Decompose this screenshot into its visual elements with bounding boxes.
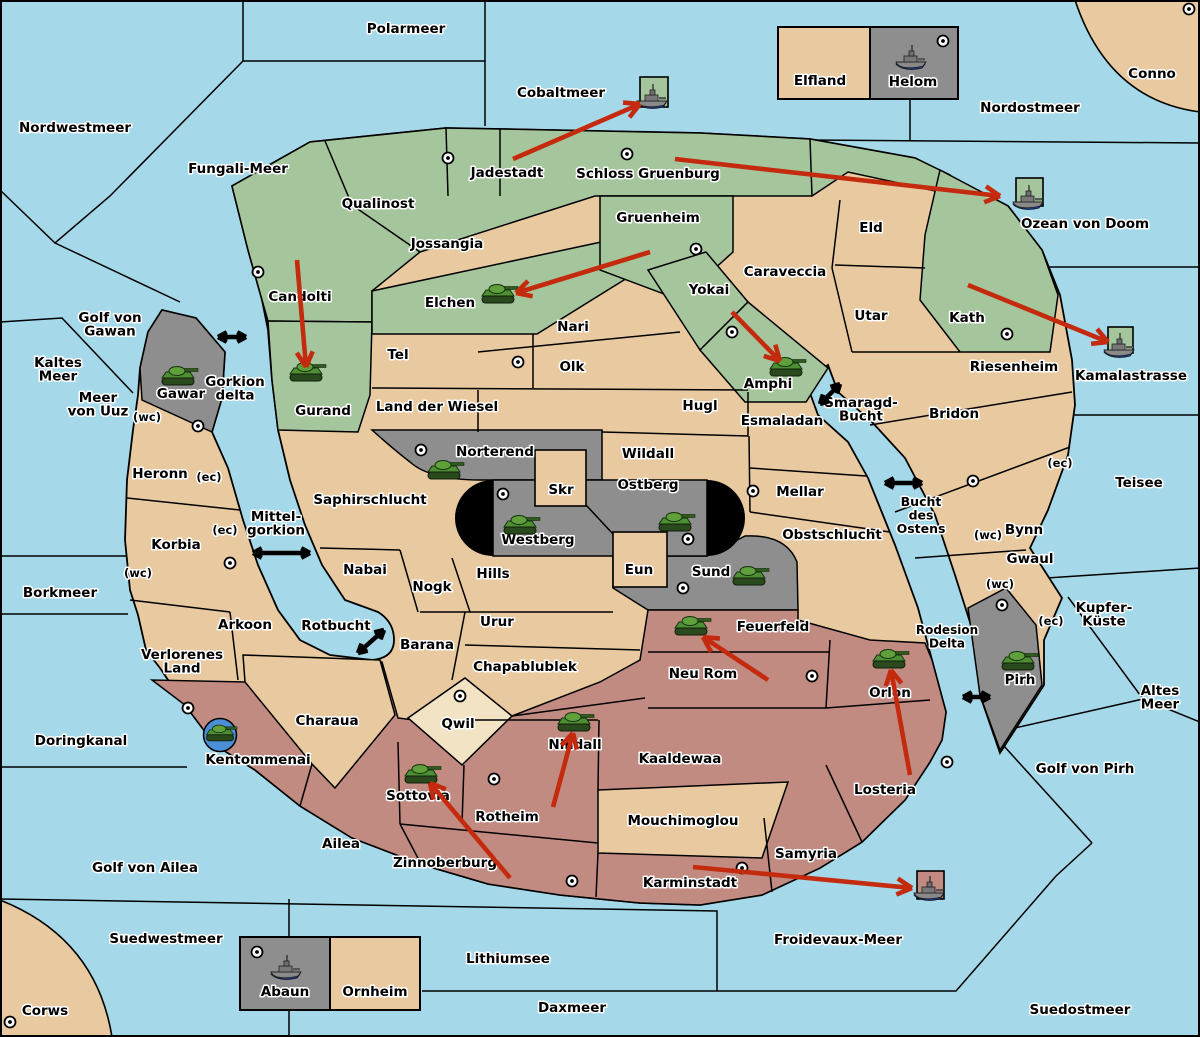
supply-center xyxy=(622,149,633,160)
territory-label: Heronn xyxy=(132,466,188,482)
territory-label: Barana xyxy=(400,637,454,653)
sea-label: Corws xyxy=(22,1003,68,1019)
sea-label: Daxmeer xyxy=(538,1000,606,1016)
supply-center xyxy=(183,703,194,714)
supply-center xyxy=(253,267,264,278)
sea-label: Nordostmeer xyxy=(980,100,1080,116)
supply-center xyxy=(727,327,738,338)
territory-label: Schloss Gruenburg xyxy=(576,166,720,182)
territory-label: Kaaldewaa xyxy=(639,751,722,767)
sea-label: Nordwestmeer xyxy=(19,120,131,136)
supply-center xyxy=(455,691,466,702)
territory-label: Esmaladan xyxy=(741,413,824,429)
territory-label: Feuerfeld xyxy=(737,619,810,635)
sea-label: Suedostmeer xyxy=(1030,1002,1131,1018)
territory-label: Norterend xyxy=(456,444,534,460)
territory-label: Gwaul xyxy=(1007,551,1054,567)
territory-label: Orlon xyxy=(869,685,911,701)
territory-label: Elfland xyxy=(794,73,846,89)
territory-label: Wildall xyxy=(622,446,674,462)
territory-label: Karminstadt xyxy=(643,875,738,891)
territory-label: Bridon xyxy=(929,406,979,422)
supply-center xyxy=(1184,4,1195,15)
territory-label: Pirh xyxy=(1005,672,1036,688)
coast-tag: (wc) xyxy=(986,577,1014,591)
sea-label: Lithiumsee xyxy=(466,951,550,967)
territory-label: Korbia xyxy=(151,537,201,553)
sea-label: AltesMeer xyxy=(1141,683,1180,713)
coast-tag: (wc) xyxy=(974,528,1002,542)
territory-label: Hills xyxy=(476,566,509,582)
game-map[interactable]: PolarmeerNordwestmeerFungali-MeerCobaltm… xyxy=(0,0,1200,1037)
supply-center xyxy=(513,357,524,368)
territory-label: Charaua xyxy=(295,713,358,729)
territory-label: Sund xyxy=(692,564,731,580)
supply-center xyxy=(938,36,949,47)
supply-center xyxy=(942,757,953,768)
coast-tag: (ec) xyxy=(196,470,221,484)
territory-label: Abaun xyxy=(261,984,309,1000)
territory-label: Kath xyxy=(949,310,985,326)
territory-label: Yokai xyxy=(688,282,730,298)
territory-label: Saphirschlucht xyxy=(313,492,427,508)
supply-center xyxy=(678,583,689,594)
sea-label: Golf vonGawan xyxy=(78,310,141,340)
sea-label: Teisee xyxy=(1115,475,1163,491)
territory-label: Zinnoberburg xyxy=(393,855,497,871)
territory-label: Eun xyxy=(625,562,653,578)
sea-label: KaltesMeer xyxy=(34,355,82,385)
territory-label: Nari xyxy=(557,319,589,335)
territory-label: Caraveccia xyxy=(744,264,826,280)
supply-center xyxy=(997,600,1008,611)
sea-label: Conno xyxy=(1128,66,1176,82)
territory-label: Obstschlucht xyxy=(782,527,882,543)
territory-label: Jossangia xyxy=(410,236,484,252)
territory-label: Qualinost xyxy=(342,196,415,212)
sea-label: Polarmeer xyxy=(367,21,446,37)
territory-label: Gawar xyxy=(157,386,206,402)
territory-label: Amphi xyxy=(744,376,792,392)
sea-label: Cobaltmeer xyxy=(517,85,605,101)
sea-label: Golf von Ailea xyxy=(92,860,198,876)
coast-tag: (ec) xyxy=(212,523,237,537)
territory-label: Neu Rom xyxy=(669,666,738,682)
territory-label: Samyria xyxy=(775,846,837,862)
territory-label: Arkoon xyxy=(218,617,272,633)
territory-label: Chapablublek xyxy=(473,659,578,675)
supply-center xyxy=(1002,329,1013,340)
sea-label: Suedwestmeer xyxy=(109,931,223,947)
coast-tag: (wc) xyxy=(133,410,161,424)
territory-label: Nabai xyxy=(343,562,387,578)
supply-center xyxy=(807,671,818,682)
coast-tag: (ec) xyxy=(1038,614,1063,628)
territory-label: Eld xyxy=(859,220,883,236)
supply-center xyxy=(683,534,694,545)
territory-label: Kentommenai xyxy=(205,752,310,768)
territory-label: Losteria xyxy=(854,782,916,798)
territory-label: Qwil xyxy=(441,716,474,732)
territory-label: Gurand xyxy=(295,403,351,419)
sea-label: Kamalastrasse xyxy=(1075,368,1187,384)
supply-center xyxy=(193,421,204,432)
supply-center xyxy=(498,489,509,500)
territory-border xyxy=(598,720,599,790)
supply-center xyxy=(225,558,236,569)
territory-label: Gruenheim xyxy=(616,210,700,226)
supply-center xyxy=(443,153,454,164)
territory-label: Mouchimoglou xyxy=(627,813,738,829)
sea-label: Doringkanal xyxy=(35,733,127,749)
sea-label: Mittel-gorkion xyxy=(247,509,305,539)
sea-label: Borkmeer xyxy=(23,585,98,601)
territory-label: Tel xyxy=(387,347,408,363)
sea-label: Froidevaux-Meer xyxy=(774,932,902,948)
territory-label: Nogk xyxy=(412,579,452,595)
territory-eun-box[interactable] xyxy=(613,532,667,587)
territory-label: Ornheim xyxy=(342,984,407,1000)
supply-center xyxy=(489,774,500,785)
territory-label: Hugl xyxy=(682,398,717,414)
territory-label: Bynn xyxy=(1005,522,1043,538)
sea-label: Fungali-Meer xyxy=(188,161,288,177)
territory-label: Urur xyxy=(480,614,514,630)
supply-center xyxy=(691,244,702,255)
sea-label: Kupfer-Küste xyxy=(1076,600,1133,630)
coast-tag: (wc) xyxy=(124,566,152,580)
territory-label: Ostberg xyxy=(617,477,678,493)
supply-center xyxy=(748,486,759,497)
territory-label: Rotheim xyxy=(475,809,539,825)
territory-label: Ailea xyxy=(322,836,360,852)
territory-label: Mellar xyxy=(776,484,824,500)
supply-center xyxy=(968,476,979,487)
territory-border xyxy=(749,436,750,512)
sea-label: Ozean von Doom xyxy=(1021,216,1149,232)
territory-label: Skr xyxy=(548,482,574,498)
game-map-frame: PolarmeerNordwestmeerFungali-MeerCobaltm… xyxy=(0,0,1200,1037)
supply-center xyxy=(567,876,578,887)
territory-label: Jadestadt xyxy=(470,165,544,181)
supply-center xyxy=(416,445,427,456)
territory-label: Riesenheim xyxy=(970,359,1058,375)
territory-label: Elchen xyxy=(425,295,475,311)
supply-center xyxy=(252,947,263,958)
territory-label: Olk xyxy=(559,359,585,375)
sea-label: Rotbucht xyxy=(301,618,371,634)
territory-label: Utar xyxy=(854,308,888,324)
territory-label: Land der Wiesel xyxy=(376,399,498,415)
territory-label: Helom xyxy=(889,74,937,90)
sea-label: Golf von Pirh xyxy=(1036,761,1135,777)
supply-center xyxy=(5,1017,16,1028)
coast-tag: (ec) xyxy=(1047,456,1072,470)
